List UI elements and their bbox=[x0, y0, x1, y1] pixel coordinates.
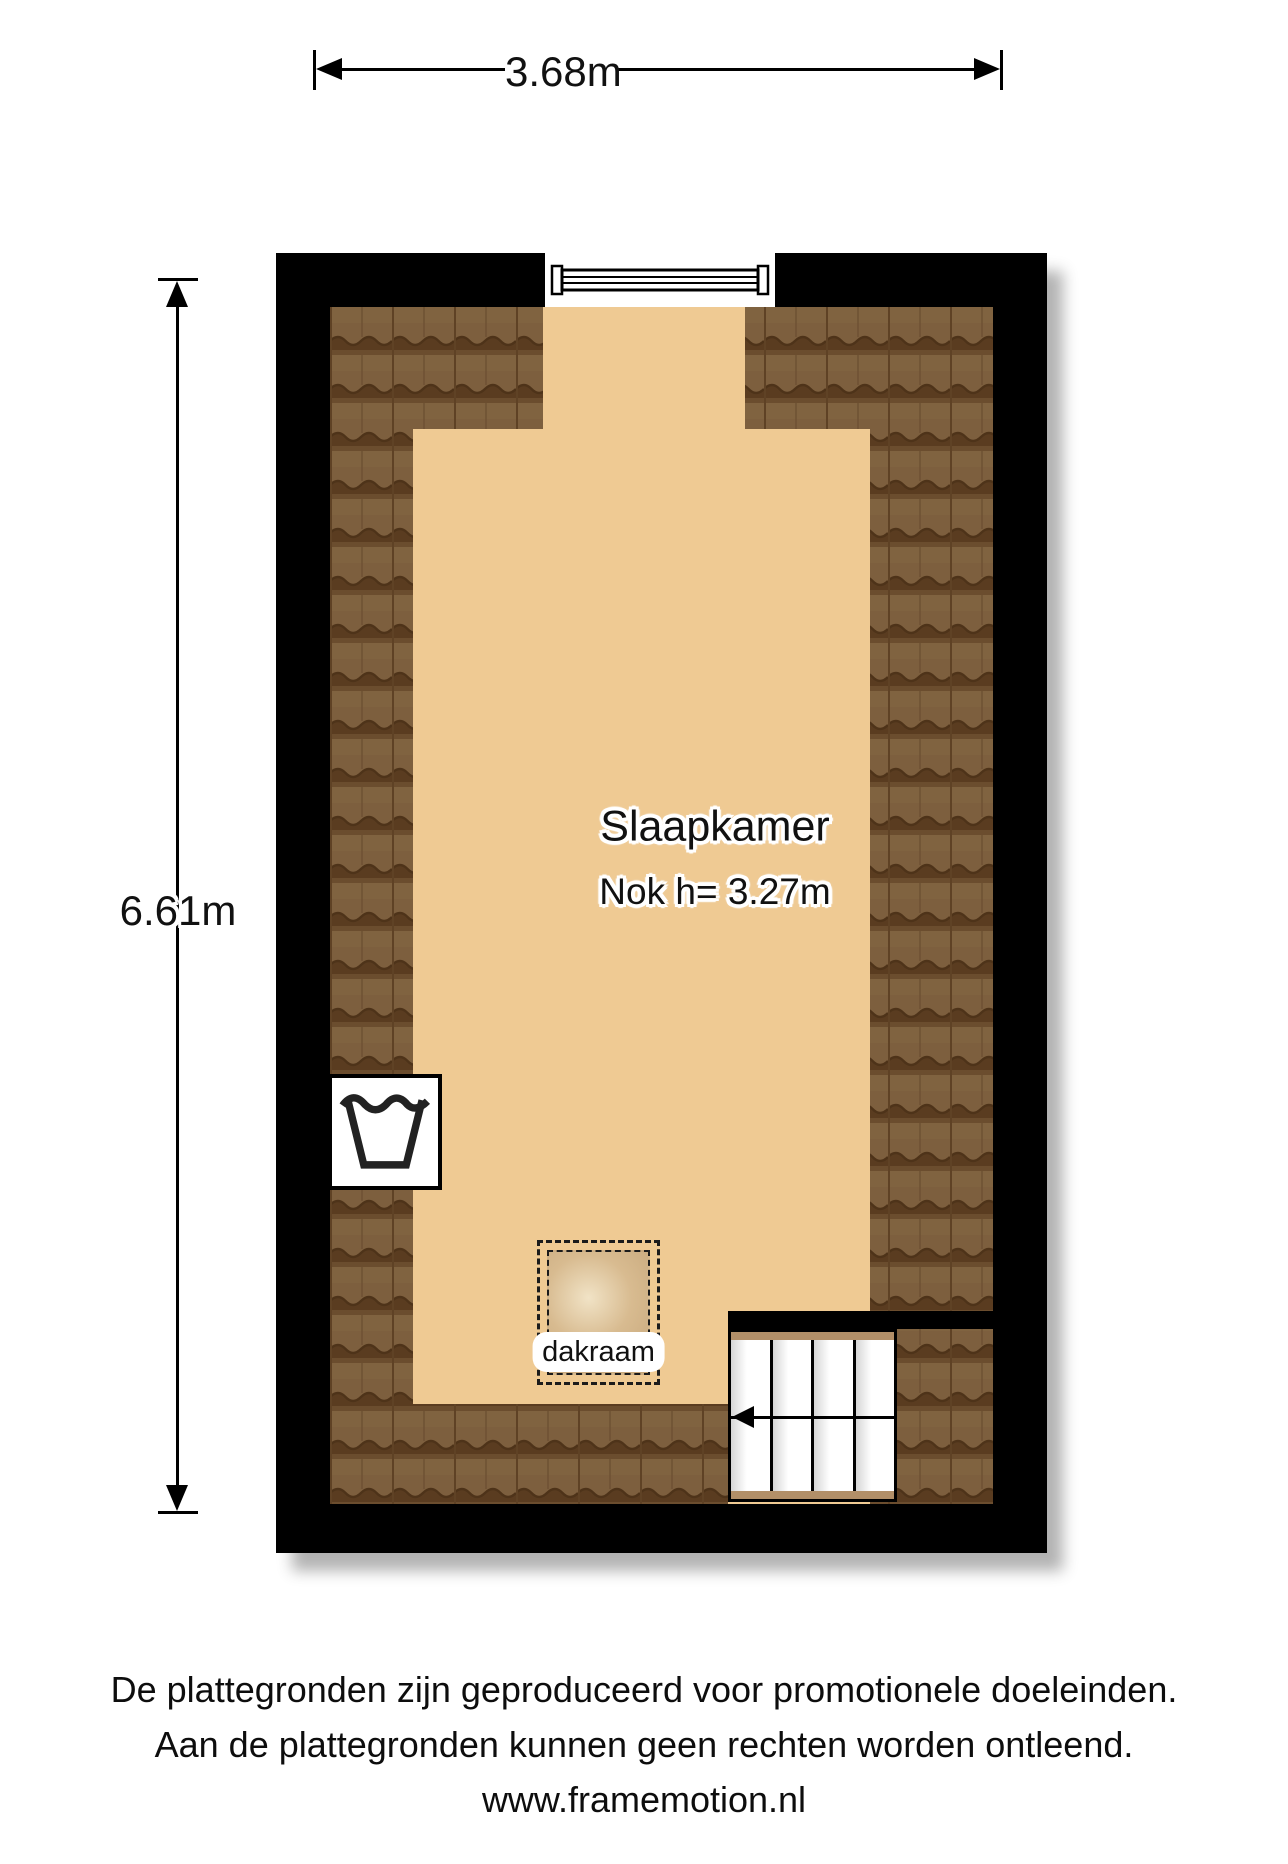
dimension-end-bar bbox=[158, 1511, 198, 1514]
wash-symbol-icon bbox=[332, 1078, 438, 1186]
window-plan-symbol bbox=[545, 253, 775, 307]
dimension-line bbox=[618, 68, 974, 71]
staircase bbox=[728, 1329, 897, 1502]
arrow-up-icon bbox=[166, 281, 188, 307]
stair-trim bbox=[731, 1491, 894, 1499]
width-dimension-label: 3.68m bbox=[505, 48, 618, 96]
window-icon bbox=[545, 253, 775, 307]
floorplan-walls: Slaapkamer Nok h= 3.27m dakraam bbox=[276, 253, 1047, 1553]
dimension-arrow-horizontal: 3.68m bbox=[313, 50, 1003, 90]
dimension-end-bar bbox=[1000, 50, 1003, 90]
footer-line-2: Aan de plattegronden kunnen geen rechten… bbox=[0, 1717, 1288, 1772]
height-dimension-label: 6.61m bbox=[120, 887, 237, 935]
arrow-down-icon bbox=[166, 1485, 188, 1511]
wash-appliance bbox=[328, 1074, 442, 1190]
footer-disclaimer: De plattegronden zijn geproduceerd voor … bbox=[0, 1662, 1288, 1827]
stairs-header-wall bbox=[728, 1311, 1020, 1329]
dimension-line bbox=[342, 68, 505, 71]
stair-trim bbox=[731, 1332, 894, 1340]
dimension-arrow-vertical: 6.61m bbox=[158, 278, 198, 1514]
footer-website: www.framemotion.nl bbox=[0, 1772, 1288, 1827]
room-name-label: Slaapkamer bbox=[600, 803, 829, 852]
arrow-left-icon bbox=[316, 58, 342, 80]
stair-direction-arrow-icon bbox=[732, 1406, 754, 1428]
ridge-height-label: Nok h= 3.27m bbox=[599, 871, 830, 913]
floorplan-page: 3.68m 6.61m bbox=[0, 0, 1288, 1864]
footer-line-1: De plattegronden zijn geproduceerd voor … bbox=[0, 1662, 1288, 1717]
skylight-label: dakraam bbox=[532, 1332, 665, 1372]
arrow-right-icon bbox=[974, 58, 1000, 80]
skylight: dakraam bbox=[537, 1240, 660, 1385]
stair-direction-line bbox=[731, 1416, 894, 1419]
